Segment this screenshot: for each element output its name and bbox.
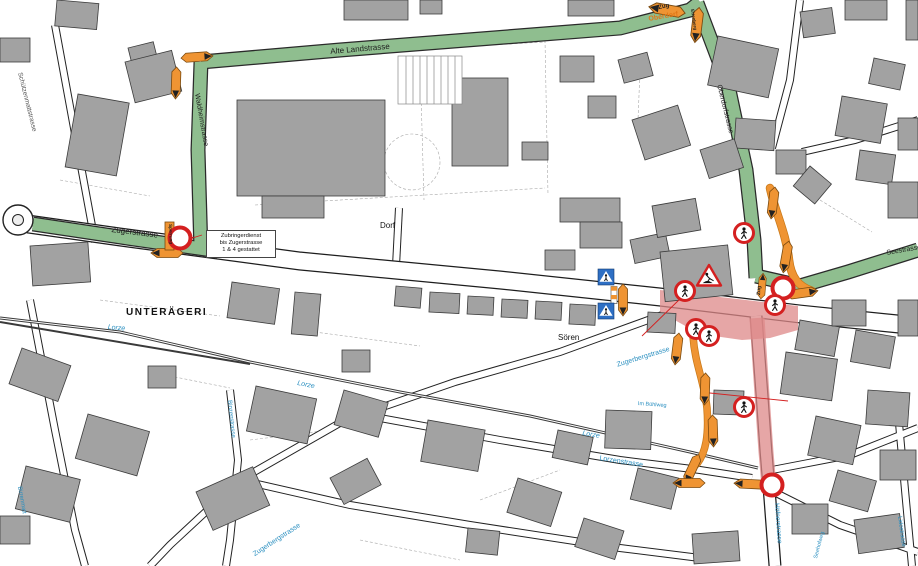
place-label-unterageri: UNTERÄGERI [126, 308, 207, 318]
parking-lot [398, 56, 462, 104]
map-canvas [0, 0, 918, 566]
detour-arrow [700, 373, 710, 405]
detour-arrow [671, 333, 684, 366]
crosswalk-sign-icon [598, 303, 614, 319]
detour-note-box: Zubringerdienst bis Zugerstrasse 1 & 4 g… [206, 230, 276, 258]
river-label-lorze: Lorze [107, 324, 125, 332]
detour-arrow [708, 415, 718, 447]
direction-label-zug-junction: Zug [757, 286, 762, 295]
construction-detour-map: Zugerstrasse Alte Landstrasse Waldheimst… [0, 0, 918, 566]
no-pedestrians-sign-icon [700, 327, 719, 346]
note-line-1: Zubringerdienst [208, 233, 274, 240]
no-pedestrians-sign-icon [766, 296, 785, 315]
closed-route-red [660, 290, 798, 487]
no-entry-sign-icon [762, 475, 783, 496]
no-pedestrians-sign-icon [735, 224, 754, 243]
detour-arrow [171, 67, 181, 99]
no-pedestrians-sign-icon [735, 398, 754, 417]
no-pedestrians-sign-icon [676, 282, 695, 301]
barrier-post-icon [611, 287, 617, 304]
roundabout [3, 205, 33, 235]
note-line-2: bis Zugerstrasse [208, 240, 274, 247]
crosswalk-sign-icon [598, 269, 614, 285]
place-label-soeren: Sören [558, 334, 579, 342]
detour-arrow [619, 284, 628, 316]
sperrung-sign-label: Sperrung [168, 224, 173, 244]
place-label-dorf: Dorf [380, 222, 395, 230]
detour-arrow [673, 479, 705, 488]
note-line-3: 1 & 4 gestattet [208, 247, 274, 254]
